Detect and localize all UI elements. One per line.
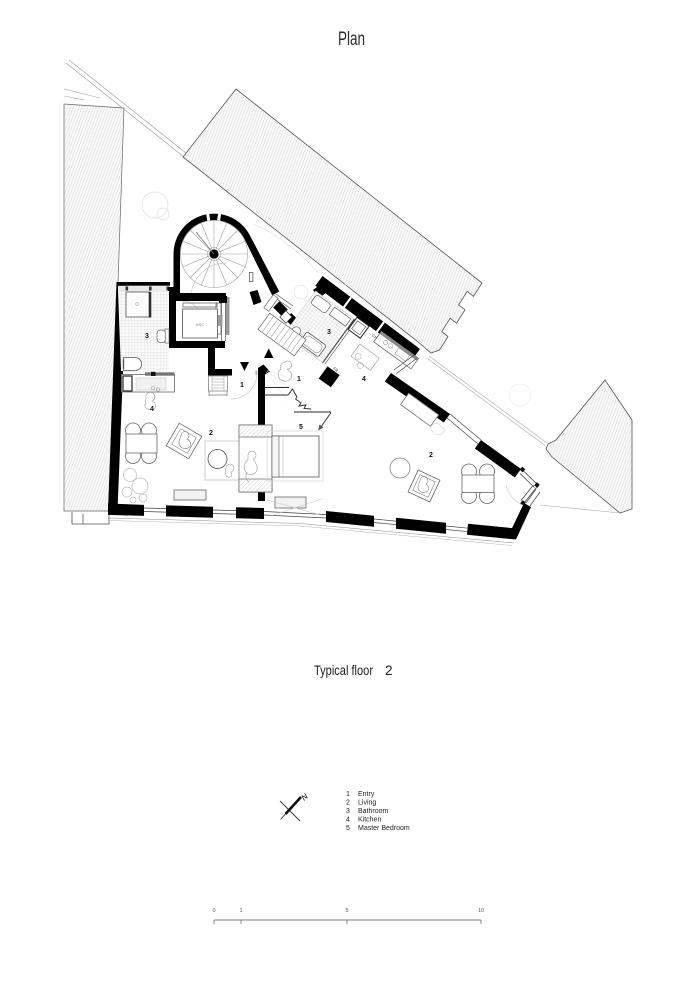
svg-text:Bathroom: Bathroom <box>358 808 389 815</box>
svg-text:1: 1 <box>297 376 301 383</box>
svg-text:2: 2 <box>385 663 393 678</box>
svg-text:Living: Living <box>358 800 376 807</box>
svg-text:Plan: Plan <box>338 29 365 50</box>
svg-text:2: 2 <box>346 800 350 807</box>
svg-text:1: 1 <box>240 382 244 389</box>
svg-text:10: 10 <box>478 908 484 914</box>
svg-text:2: 2 <box>209 430 213 437</box>
svg-text:5: 5 <box>346 825 350 832</box>
svg-text:Kitchen: Kitchen <box>358 817 381 824</box>
svg-text:1: 1 <box>239 908 242 914</box>
svg-text:Entry: Entry <box>358 791 375 798</box>
svg-text:4: 4 <box>362 376 366 383</box>
svg-text:Master Bedroom: Master Bedroom <box>358 825 410 832</box>
svg-text:5: 5 <box>299 424 303 431</box>
svg-text:3: 3 <box>145 333 149 340</box>
svg-text:0: 0 <box>212 908 215 914</box>
svg-text:3: 3 <box>346 808 350 815</box>
svg-text:4: 4 <box>150 406 154 413</box>
svg-text:5: 5 <box>345 908 348 914</box>
svg-text:3: 3 <box>327 329 331 336</box>
svg-text:Typical floor: Typical floor <box>314 663 373 678</box>
svg-text:ASC: ASC <box>196 322 204 327</box>
svg-text:1: 1 <box>346 791 350 798</box>
svg-text:4: 4 <box>346 817 350 824</box>
svg-text:2: 2 <box>429 452 433 459</box>
